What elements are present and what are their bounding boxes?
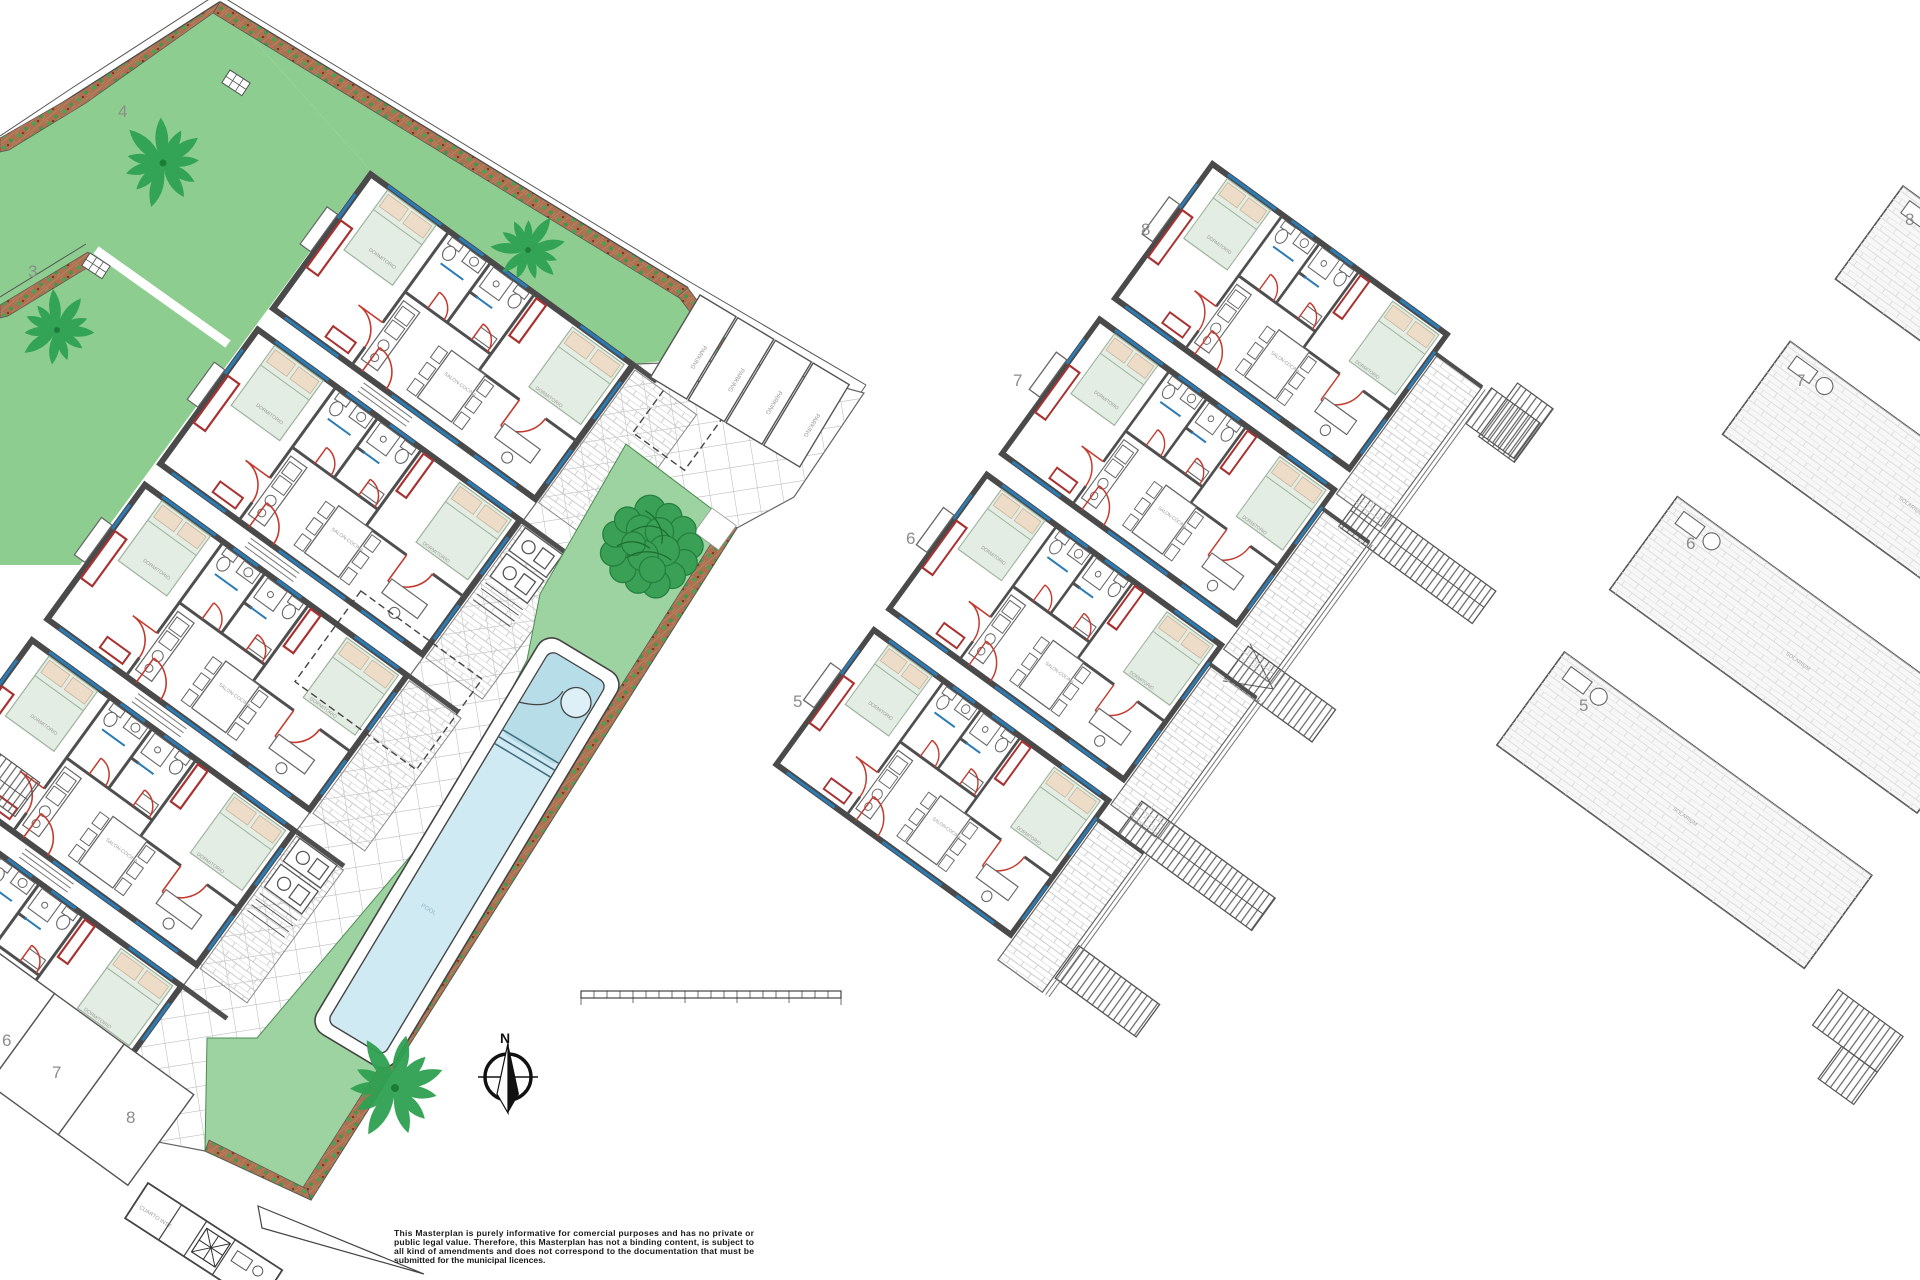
svg-text:4: 4 xyxy=(118,102,127,121)
svg-text:7: 7 xyxy=(1796,371,1805,390)
svg-text:submitted for the municipal li: submitted for the municipal licences. xyxy=(394,1255,545,1265)
svg-text:8: 8 xyxy=(1141,220,1150,239)
svg-text:5: 5 xyxy=(1579,696,1588,715)
svg-text:8: 8 xyxy=(1905,210,1914,229)
svg-text:8: 8 xyxy=(126,1108,135,1127)
svg-text:6: 6 xyxy=(906,529,915,548)
svg-text:3: 3 xyxy=(28,262,37,281)
svg-text:6: 6 xyxy=(2,1031,11,1050)
svg-text:7: 7 xyxy=(1013,371,1022,390)
svg-text:N: N xyxy=(500,1030,510,1046)
svg-text:7: 7 xyxy=(52,1063,61,1082)
svg-text:6: 6 xyxy=(1686,534,1695,553)
svg-text:5: 5 xyxy=(793,692,802,711)
